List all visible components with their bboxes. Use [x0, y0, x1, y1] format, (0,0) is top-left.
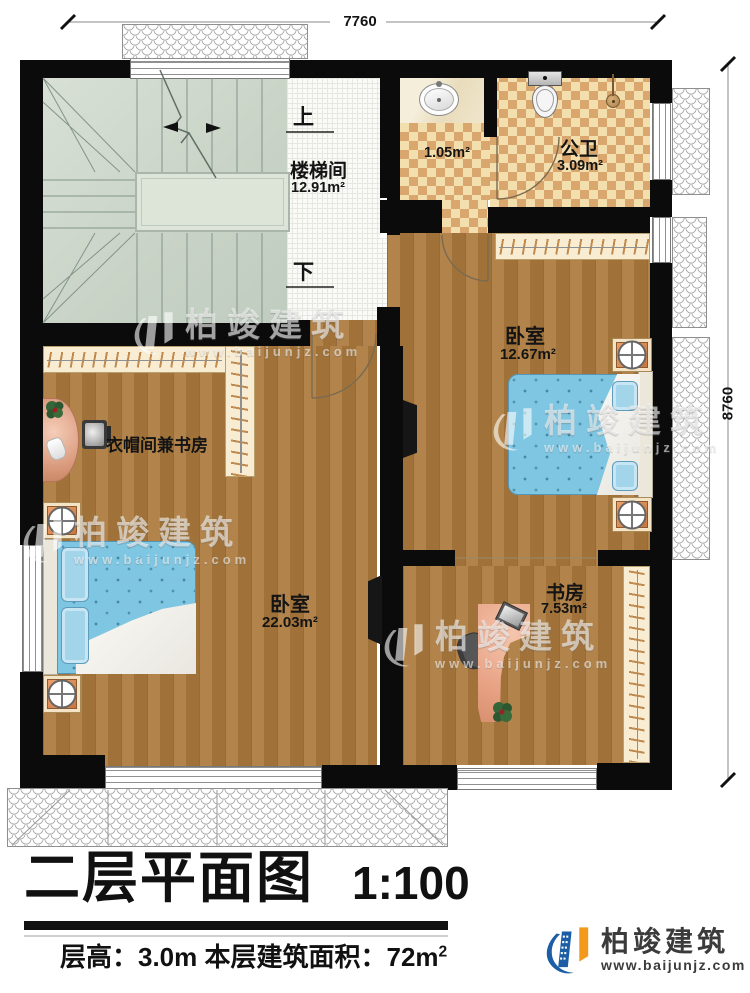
shower-head [606, 94, 620, 108]
plan-scale: 1:100 [352, 860, 470, 906]
dimension-right: 8760 [721, 378, 736, 430]
room-area-bedroom-right: 12.67m² [500, 347, 556, 362]
study-wardrobe [623, 566, 650, 763]
nightstand [43, 675, 81, 713]
wall [598, 550, 652, 566]
wall [650, 263, 672, 790]
wall [380, 346, 403, 768]
roof-tiles-bottom [7, 788, 448, 847]
wall [484, 73, 497, 137]
sink [419, 83, 459, 116]
wall [377, 307, 400, 346]
title-underline [24, 921, 448, 930]
company-name: 柏竣建筑 [601, 927, 746, 958]
room-name-cloakroom: 衣帽间兼书房 [106, 437, 208, 454]
room-area-stairwell: 12.91m² [291, 181, 345, 196]
bathroom-threshold [442, 200, 488, 233]
cloakroom-doorway-floor [310, 320, 377, 346]
bed-headboard [638, 371, 653, 498]
monitor-cloakroom [82, 420, 107, 449]
room-area-study: 7.53m² [541, 602, 587, 617]
wall [20, 755, 105, 788]
stairwell-window [130, 58, 290, 79]
wall [650, 60, 672, 103]
bed-pillow [61, 607, 89, 664]
bed-headboard [43, 539, 58, 675]
room-name-bedroom-right: 卧室 [505, 327, 545, 347]
wall [20, 672, 43, 768]
study-window [457, 768, 597, 790]
wall [322, 765, 457, 790]
cloakroom-wardrobe [43, 346, 226, 373]
title-underline-light [24, 935, 448, 937]
roof-tiles-right-2 [672, 217, 707, 328]
wall [650, 180, 672, 217]
bed-pillow [612, 461, 638, 491]
room-name-stairwell: 楼梯间 [290, 162, 347, 181]
page-title: 二层平面图 [24, 850, 314, 906]
bathroom-window [652, 103, 671, 180]
cloakroom-wardrobe-column [225, 346, 255, 477]
nightstand [612, 338, 652, 372]
dimension-top: 7760 [332, 14, 388, 29]
plant-icon [490, 700, 514, 724]
company-logo: 柏竣建筑 www.baijunjz.com [545, 922, 746, 978]
plant-icon [44, 399, 66, 421]
wall [20, 60, 43, 545]
study-floor [403, 566, 650, 765]
room-area-bedroom-left: 22.03m² [262, 615, 318, 630]
tv-right-bedroom [403, 400, 417, 458]
bedroom-right-window [652, 217, 671, 263]
nightstand [612, 497, 652, 532]
wall [290, 60, 672, 78]
vanity-floor [400, 123, 490, 200]
roof-tiles-right-1 [672, 88, 710, 195]
room-name-bedroom-left: 卧室 [270, 595, 310, 615]
bedroom-right-wardrobe [495, 233, 650, 260]
toilet [528, 71, 564, 119]
area-vanity: 1.05m² [424, 146, 470, 161]
stair-down-label: 下 [293, 262, 314, 283]
wall [287, 320, 310, 346]
company-logo-icon [545, 922, 593, 978]
corridor-floor [287, 78, 381, 238]
floor-info: 层高：3.0m 本层建筑面积：72m2 [60, 944, 447, 970]
wall [380, 60, 400, 198]
room-area-bathroom: 3.09m² [557, 159, 603, 174]
bedroom-left-window [22, 545, 43, 672]
company-url: www.baijunjz.com [601, 957, 746, 973]
wall [20, 323, 287, 346]
roof-tiles-top [122, 24, 308, 59]
roof-tiles-right-3 [672, 337, 710, 560]
bedroom-left-bottom-window [105, 766, 322, 789]
wall [488, 207, 650, 233]
stair-landing [135, 172, 290, 232]
nightstand [43, 502, 81, 539]
wall [380, 200, 442, 233]
room-name-bathroom: 公卫 [560, 140, 598, 159]
bed-pillow [61, 547, 89, 602]
bed-pillow [612, 381, 638, 411]
floor-plan-page: 7760 8760 上 下 楼梯间 12.91m² 1.05m² 公卫 3.09… [0, 0, 750, 993]
wall [403, 550, 455, 566]
stair-up-label: 上 [293, 107, 314, 128]
tv-left-bedroom [368, 575, 382, 645]
